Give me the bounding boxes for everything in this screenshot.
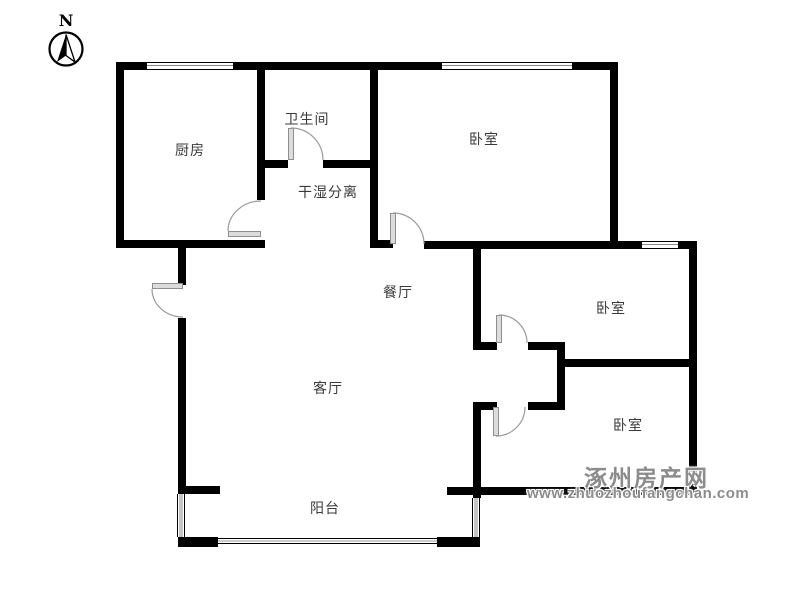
wall-segment: [116, 62, 124, 248]
wall-segment: [557, 342, 565, 410]
wall-segment: [557, 359, 690, 367]
door-arc-bedroom-east: [499, 315, 527, 343]
room-label-kitchen: 厨房: [175, 140, 205, 160]
door-arc-bathroom: [291, 128, 323, 160]
wall-segment: [610, 62, 618, 248]
window-balcony-right: [472, 498, 480, 537]
wall-segment: [689, 241, 697, 495]
watermark-site-url: www.zhuozhoufangchan.com: [527, 485, 749, 502]
window-balcony-left: [177, 494, 185, 537]
north-arrow-icon: N: [45, 10, 89, 77]
room-label-dry-wet-separation: 干湿分离: [298, 182, 358, 202]
door-arc-entry: [152, 289, 183, 317]
room-label-bathroom: 卫生间: [285, 109, 330, 129]
wall-segment: [181, 486, 220, 494]
room-label-bedroom-southeast: 卧室: [613, 415, 643, 435]
wall-segment: [437, 537, 480, 547]
door-arc-bedroom-north: [393, 213, 424, 244]
room-label-living: 客厅: [313, 378, 343, 398]
wall-segment: [178, 537, 218, 547]
window-kitchen: [147, 62, 233, 70]
wall-segment: [424, 241, 642, 249]
wall-segment: [265, 160, 288, 168]
compass-n-label: N: [59, 11, 74, 30]
room-label-balcony: 阳台: [310, 498, 340, 518]
wall-segment: [473, 402, 481, 498]
door-leaf-bedroom-southeast: [493, 407, 499, 436]
wall-segment: [178, 318, 186, 494]
floor-plan: N: [0, 0, 800, 600]
door-arc-kitchen: [228, 201, 261, 231]
room-label-bedroom-east: 卧室: [596, 298, 626, 318]
door-arc-bedroom-southeast: [496, 407, 525, 436]
window-bedroom-east: [642, 241, 678, 249]
wall-segment: [473, 342, 497, 350]
door-leaf-bathroom: [288, 128, 294, 160]
door-leaf-bedroom-east: [496, 315, 502, 343]
room-label-dining: 餐厅: [383, 282, 413, 302]
window-bedroom-north: [442, 62, 572, 70]
wall-segment: [528, 402, 565, 410]
wall-segment: [370, 62, 378, 248]
door-leaf-entry: [152, 283, 183, 289]
window-balcony-front: [218, 538, 437, 544]
door-leaf-bedroom-north: [390, 213, 396, 244]
wall-segment: [257, 62, 265, 200]
wall-segment: [178, 248, 186, 285]
wall-segment: [473, 248, 481, 350]
wall-segment: [116, 240, 265, 248]
room-label-bedroom-north: 卧室: [469, 129, 499, 149]
wall-segment: [323, 160, 378, 168]
door-leaf-kitchen: [228, 231, 261, 237]
